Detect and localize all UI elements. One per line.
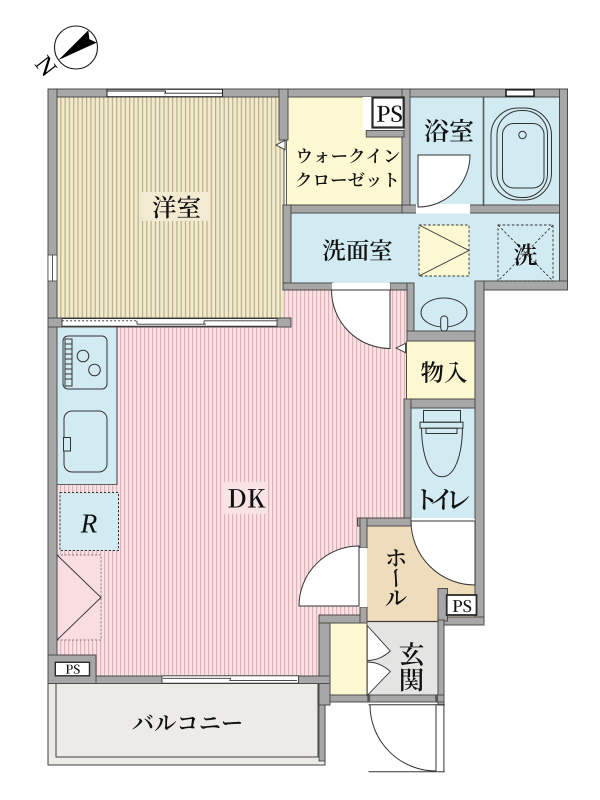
svg-text:R: R [80, 509, 98, 539]
